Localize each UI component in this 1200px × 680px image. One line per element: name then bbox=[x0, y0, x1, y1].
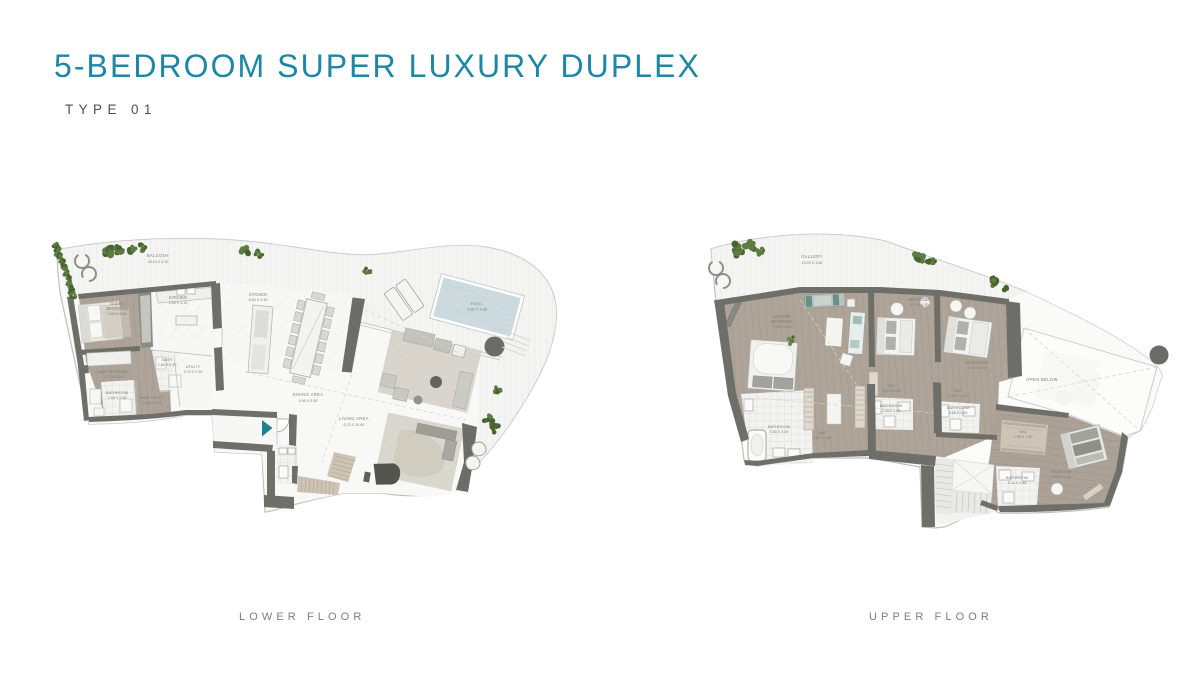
svg-text:POOL: POOL bbox=[471, 301, 484, 306]
svg-text:GALLERY: GALLERY bbox=[801, 254, 823, 259]
svg-text:BATHROOM: BATHROOM bbox=[880, 403, 902, 408]
svg-text:KITCHEN: KITCHEN bbox=[249, 292, 267, 297]
svg-text:4.00 X 4.45: 4.00 X 4.45 bbox=[1052, 475, 1071, 479]
svg-text:2.65 X 1.67: 2.65 X 1.67 bbox=[949, 394, 968, 398]
svg-text:BATHROOM: BATHROOM bbox=[947, 405, 969, 410]
svg-text:BEDROOM: BEDROOM bbox=[771, 319, 793, 324]
svg-text:3.90 X 5.60: 3.90 X 5.60 bbox=[108, 312, 127, 316]
svg-text:2.45 X 1.60: 2.45 X 1.60 bbox=[882, 409, 901, 413]
svg-text:W/C: W/C bbox=[818, 430, 826, 435]
svg-text:BATHROOM: BATHROOM bbox=[106, 390, 128, 395]
svg-text:BALCONY: BALCONY bbox=[147, 253, 169, 258]
svg-text:2.55 X 4.40: 2.55 X 4.40 bbox=[813, 436, 832, 440]
svg-text:LIVING AREA: LIVING AREA bbox=[339, 416, 369, 421]
svg-text:9.80 X 3.28: 9.80 X 3.28 bbox=[467, 308, 486, 312]
svg-text:OPEN BELOW: OPEN BELOW bbox=[1026, 377, 1058, 382]
svg-text:MAID BEDROOM: MAID BEDROOM bbox=[98, 369, 129, 374]
svg-text:5.60 X 4.30: 5.60 X 4.30 bbox=[249, 298, 268, 302]
svg-text:28.10 X 4.30: 28.10 X 4.30 bbox=[148, 260, 169, 264]
svg-text:BEDROOM: BEDROOM bbox=[1051, 469, 1071, 474]
svg-text:W/C: W/C bbox=[1019, 429, 1027, 434]
svg-text:3.60 X 4.43: 3.60 X 4.43 bbox=[968, 366, 987, 370]
svg-text:5.70 X 4.30: 5.70 X 4.30 bbox=[910, 303, 929, 307]
svg-text:BATH: BATH bbox=[162, 357, 172, 362]
svg-text:1.48 X 2.52: 1.48 X 2.52 bbox=[108, 396, 127, 400]
svg-text:KITCHEN: KITCHEN bbox=[169, 295, 187, 300]
svg-text:W/C: W/C bbox=[954, 388, 962, 393]
svg-text:1.95 X 1.60: 1.95 X 1.60 bbox=[1014, 435, 1033, 439]
svg-text:1.66 X 2.62: 1.66 X 2.62 bbox=[143, 401, 162, 405]
svg-text:UTILITY: UTILITY bbox=[186, 364, 201, 369]
svg-text:3.50 X 3.40: 3.50 X 3.40 bbox=[770, 430, 789, 434]
svg-text:5.60 X 4.30: 5.60 X 4.30 bbox=[169, 301, 188, 305]
svg-text:BEDROOM: BEDROOM bbox=[106, 306, 128, 311]
svg-text:2.50 X 1.60: 2.50 X 1.60 bbox=[882, 389, 901, 393]
svg-text:1.85 X 2.20: 1.85 X 2.20 bbox=[158, 363, 177, 367]
svg-text:15.20 X 3.60: 15.20 X 3.60 bbox=[802, 261, 823, 265]
svg-text:7.50 X 5.60: 7.50 X 5.60 bbox=[773, 325, 792, 329]
svg-text:6.70 X 10.60: 6.70 X 10.60 bbox=[344, 423, 365, 427]
svg-text:2.70 X 2.20: 2.70 X 2.20 bbox=[184, 370, 203, 374]
svg-text:BATHROOM: BATHROOM bbox=[768, 424, 790, 429]
svg-text:4.90 X 5.50: 4.90 X 5.50 bbox=[299, 399, 318, 403]
svg-text:BEDROOM: BEDROOM bbox=[908, 297, 930, 302]
svg-text:2.45 X 1.65: 2.45 X 1.65 bbox=[949, 411, 968, 415]
svg-text:MAID TOILET: MAID TOILET bbox=[140, 395, 165, 400]
svg-text:2.70 X 3.16: 2.70 X 3.16 bbox=[104, 375, 123, 379]
svg-text:BATHROOM: BATHROOM bbox=[1006, 475, 1028, 480]
svg-text:3.33 X 1.45: 3.33 X 1.45 bbox=[1008, 481, 1027, 485]
svg-text:DINING AREA: DINING AREA bbox=[293, 392, 324, 397]
svg-text:BEDROOM: BEDROOM bbox=[966, 360, 988, 365]
svg-text:W/C: W/C bbox=[887, 383, 895, 388]
